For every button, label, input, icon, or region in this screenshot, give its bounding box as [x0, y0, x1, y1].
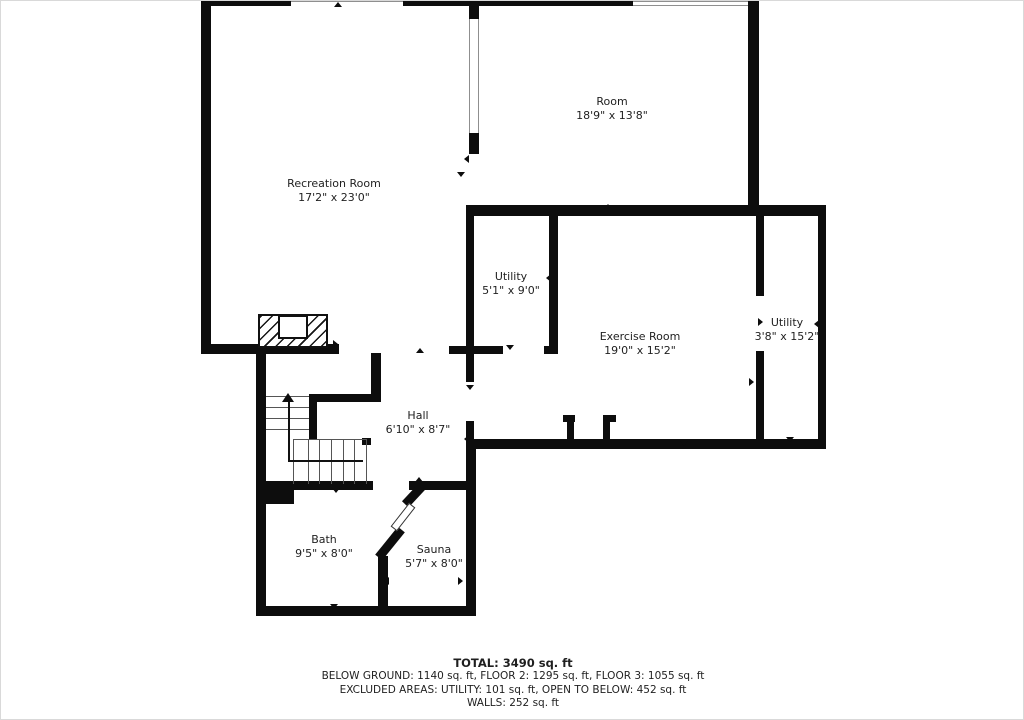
dimension-marker — [466, 385, 474, 390]
room-dimensions: 5'7" x 8'0" — [405, 557, 463, 571]
stair-arrow-head — [282, 393, 294, 402]
room-dimensions: 18'9" x 13'8" — [576, 109, 648, 123]
wall — [256, 346, 266, 616]
fireplace-firebox — [278, 315, 308, 339]
excluded-areas-text: EXCLUDED AREAS: UTILITY: 101 sq. ft, OPE… — [1, 684, 1024, 698]
total-area-text: TOTAL: 3490 sq. ft — [1, 656, 1024, 670]
wall — [466, 439, 826, 449]
door-opening — [391, 503, 416, 532]
dimension-marker — [203, 167, 208, 175]
dimension-marker — [458, 577, 463, 585]
room-name: Bath — [295, 533, 353, 547]
room-name: Utility — [755, 316, 820, 330]
room-dimensions: 9'5" x 8'0" — [295, 547, 353, 561]
room-name: Recreation Room — [287, 177, 381, 191]
wall — [748, 1, 759, 216]
dimension-marker — [333, 340, 338, 348]
room-dimensions: 3'8" x 15'2" — [755, 330, 820, 344]
dimension-marker — [416, 348, 424, 353]
room-name: Sauna — [405, 543, 463, 557]
dimension-marker — [604, 204, 612, 209]
walls-area-text: WALLS: 252 sq. ft — [1, 697, 1024, 711]
floor-plan: Recreation Room17'2" x 23'0"Room18'9" x … — [1, 1, 1024, 621]
dimension-marker — [330, 604, 338, 609]
room-label-recreation-room: Recreation Room17'2" x 23'0" — [287, 177, 381, 205]
stair-direction-arrow — [288, 401, 290, 460]
floor-areas-text: BELOW GROUND: 1140 sq. ft, FLOOR 2: 1295… — [1, 670, 1024, 684]
dimension-marker — [334, 2, 342, 7]
dimension-marker — [680, 441, 688, 446]
room-name: Hall — [386, 409, 451, 423]
wall — [756, 351, 764, 439]
wall — [603, 415, 616, 422]
window — [633, 1, 748, 6]
window — [291, 1, 403, 6]
room-label-bath: Bath9'5" x 8'0" — [295, 533, 353, 561]
room-label-utility-2: Utility3'8" x 15'2" — [755, 316, 820, 344]
window — [469, 19, 479, 133]
wall — [466, 205, 474, 382]
room-name: Utility — [482, 270, 540, 284]
wall — [544, 346, 558, 354]
room-name: Exercise Room — [600, 330, 681, 344]
room-dimensions: 17'2" x 23'0" — [287, 191, 381, 205]
room-label-room: Room18'9" x 13'8" — [576, 95, 648, 123]
dimension-marker — [457, 172, 465, 177]
dimension-marker — [749, 378, 754, 386]
wall — [201, 1, 291, 6]
room-label-hall: Hall6'10" x 8'7" — [386, 409, 451, 437]
stair-direction-arrow — [288, 460, 363, 462]
wall — [469, 133, 479, 154]
room-dimensions: 6'10" x 8'7" — [386, 423, 451, 437]
dimension-marker — [464, 155, 469, 163]
wall — [201, 1, 211, 354]
room-label-sauna: Sauna5'7" x 8'0" — [405, 543, 463, 571]
stair-tread — [293, 439, 366, 440]
wall — [309, 402, 317, 439]
diagonal-wall — [375, 527, 405, 561]
wall — [449, 346, 503, 354]
dimension-marker — [384, 577, 389, 585]
dimension-marker — [437, 606, 445, 611]
dimension-marker — [546, 274, 551, 282]
dimension-marker — [680, 211, 688, 216]
wall — [378, 556, 388, 616]
dimension-marker — [506, 345, 514, 350]
dimension-marker — [464, 435, 469, 443]
dimension-marker — [468, 274, 473, 282]
wall — [466, 449, 476, 616]
wall — [567, 415, 574, 441]
room-label-utility-1: Utility5'1" x 9'0" — [482, 270, 540, 298]
dimension-marker — [332, 488, 340, 493]
stair-tread — [366, 439, 367, 484]
wall — [756, 216, 764, 296]
area-summary: TOTAL: 3490 sq. ft BELOW GROUND: 1140 sq… — [1, 656, 1024, 711]
wall — [309, 394, 381, 402]
wall — [403, 1, 633, 6]
dimension-marker — [786, 437, 794, 442]
room-dimensions: 5'1" x 9'0" — [482, 284, 540, 298]
room-name: Room — [576, 95, 648, 109]
dimension-marker — [786, 211, 794, 216]
wall — [469, 1, 479, 19]
floor-plan-page: Recreation Room17'2" x 23'0"Room18'9" x … — [0, 0, 1024, 720]
room-label-exercise-room: Exercise Room19'0" x 15'2" — [600, 330, 681, 358]
room-dimensions: 19'0" x 15'2" — [600, 344, 681, 358]
wall — [266, 484, 294, 504]
